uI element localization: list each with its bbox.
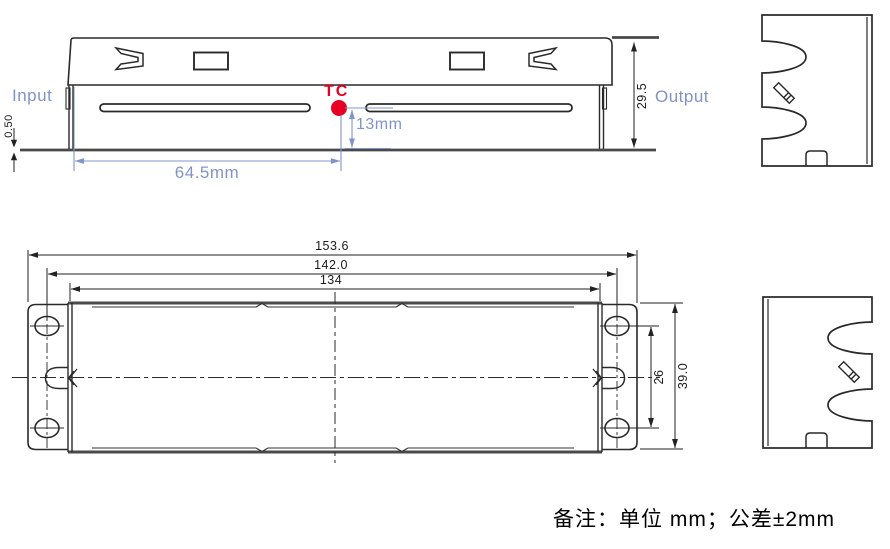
extension-lines-64-5 [74,87,341,171]
end-plate-outline-bottom [763,297,872,448]
vent-slot-right [366,104,572,112]
drawing-canvas [0,0,890,549]
end-view-top [762,15,872,166]
input-label: Input [12,87,52,104]
tc-label: TC [324,84,349,100]
dim-label-26: 26 [653,362,667,392]
end-view-bottom [763,297,872,448]
dim-label-13mm: 13mm [356,117,402,133]
dim-label-29-5: 29.5 [636,76,650,116]
dim-label-153-6: 153.6 [297,240,367,253]
footer-note: 备注：单位 mm；公差±2mm [553,503,835,533]
tc-point-marker [331,100,347,116]
output-label: Output [655,88,709,105]
dim-label-142-0: 142.0 [296,259,366,272]
dim-label-39-0: 39.0 [677,358,691,394]
side-view [11,38,659,173]
dim-label-0-50: 0.50 [4,108,18,144]
dim-label-64-5mm: 64.5mm [147,164,267,181]
vent-slot-left [100,104,310,112]
end-plate-outline-top [762,15,872,166]
dim-label-134: 134 [296,274,366,287]
technical-drawing-page: Input Output TC 13mm 64.5mm 0.50 29.5 15… [0,0,890,549]
arrow-0-50-lower [11,153,17,161]
